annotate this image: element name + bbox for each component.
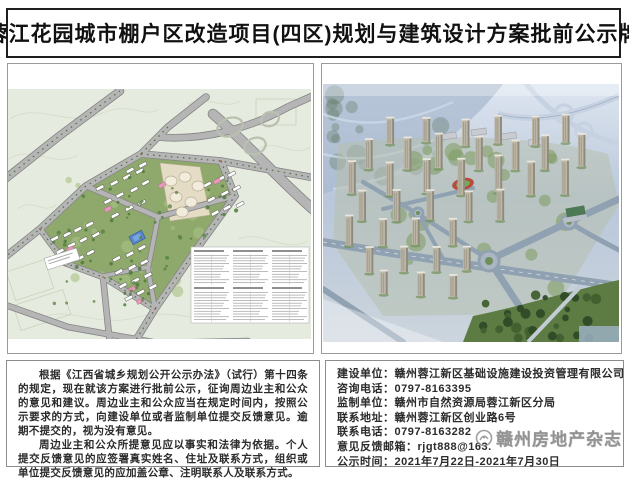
contact-value: 0797-8163282 <box>395 426 472 438</box>
notice-title-box: 蓉江花园城市棚户区改造项目(四区)规划与建筑设计方案批前公示牌 <box>6 8 621 58</box>
contact-value: 赣州市自然资源局蓉江新区分局 <box>395 397 556 409</box>
contact-value: 0797-8163395 <box>395 383 472 395</box>
contact-value: 2021年7月22日-2021年7月30日 <box>395 456 561 468</box>
contact-value: 赣州蓉江新区创业路6号 <box>395 412 517 424</box>
site-plan-image <box>8 89 311 339</box>
contact-label: 联系电话： <box>337 426 395 438</box>
aerial-rendering-image <box>323 84 619 342</box>
contact-line-address: 联系地址：赣州蓉江新区创业路6号 <box>337 411 619 426</box>
notice-paragraph-1: 根据《江西省城乡规划公开公示办法》（试行）第十四条的规定，现在就该方案进行批前公… <box>18 368 308 438</box>
contact-label: 监制单位： <box>337 397 395 409</box>
contact-line-builder: 建设单位：赣州蓉江新区基础设施建设投资管理有限公司 <box>337 367 619 382</box>
contact-line-email: 意见反馈邮箱：rjgt888@163. <box>337 440 619 455</box>
aerial-rendering-panel <box>321 63 622 354</box>
contact-label: 公示时间： <box>337 456 395 468</box>
page-title: 蓉江花园城市棚户区改造项目(四区)规划与建筑设计方案批前公示牌 <box>0 18 629 48</box>
indicator-table <box>191 247 309 323</box>
contact-info-box: 建设单位：赣州蓉江新区基础设施建设投资管理有限公司 咨询电话：0797-8163… <box>325 360 624 467</box>
contact-value: 赣州蓉江新区基础设施建设投资管理有限公司 <box>395 368 625 380</box>
contact-label: 咨询电话： <box>337 383 395 395</box>
contact-line-period: 公示时间：2021年7月22日-2021年7月30日 <box>337 455 619 470</box>
notice-text-box: 根据《江西省城乡规划公开公示办法》（试行）第十四条的规定，现在就该方案进行批前公… <box>6 360 320 467</box>
contact-line-phone2: 联系电话：0797-8163282 <box>337 425 619 440</box>
contact-value: rjgt888@163. <box>418 441 492 453</box>
site-plan-panel <box>7 63 314 354</box>
contact-label: 意见反馈邮箱： <box>337 441 418 453</box>
contact-line-phone: 咨询电话：0797-8163395 <box>337 382 619 397</box>
contact-line-supervisor: 监制单位：赣州市自然资源局蓉江新区分局 <box>337 396 619 411</box>
notice-paragraph-2: 周边业主和公众所提意见应以事实和法律为依据。个人提交反馈意见的应签署真实姓名、住… <box>18 438 308 480</box>
contact-label: 联系地址： <box>337 412 395 424</box>
contact-label: 建设单位： <box>337 368 395 380</box>
